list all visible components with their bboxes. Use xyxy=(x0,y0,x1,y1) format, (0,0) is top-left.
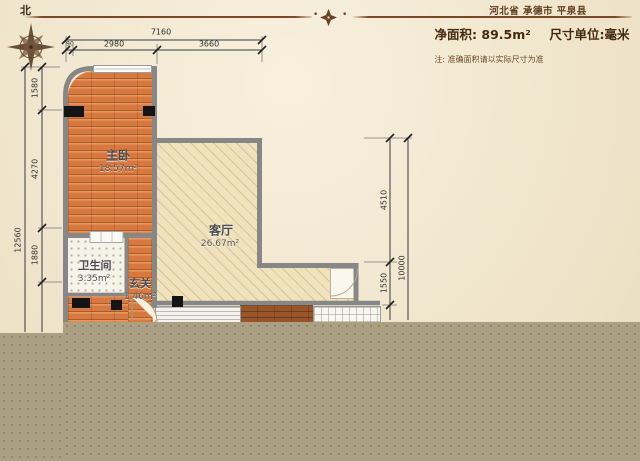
dim-top-total: 7160 xyxy=(151,28,171,37)
room-area-entry: 1.46m² xyxy=(124,292,156,302)
dim-right-seg1: 4510 xyxy=(380,190,389,210)
cutoff-overlay-left xyxy=(0,333,63,461)
dim-left-total: 12560 xyxy=(14,227,23,252)
room-area-bathroom: 3.35m² xyxy=(78,274,110,284)
room-label-living-room: 客厅 xyxy=(209,222,233,239)
dim-left-seg1: 1580 xyxy=(31,78,40,98)
room-label-master-bedroom: 主卧 xyxy=(106,147,130,164)
dim-top-seg2: 3660 xyxy=(199,40,219,49)
room-label-entry: 玄关 xyxy=(129,275,151,291)
dim-right-total: 10000 xyxy=(398,255,407,280)
floorplan-page: 北 • • 河北省 承德市 平泉县 净面积: 89.5m² 尺寸单位:毫米 注:… xyxy=(0,0,640,461)
cutoff-overlay-main xyxy=(63,322,640,461)
room-area-living-room: 26.67m² xyxy=(201,239,239,249)
dim-right-seg2: 1550 xyxy=(380,273,389,293)
room-label-bathroom: 卫生间 xyxy=(79,257,112,273)
dim-left-seg2: 4270 xyxy=(31,159,40,179)
dim-top-seg1: 2980 xyxy=(104,40,124,49)
room-area-master-bedroom: 18.57m² xyxy=(99,164,137,174)
dim-top-seg-small: 90 xyxy=(66,41,74,48)
dim-left-seg3: 1880 xyxy=(31,245,40,265)
